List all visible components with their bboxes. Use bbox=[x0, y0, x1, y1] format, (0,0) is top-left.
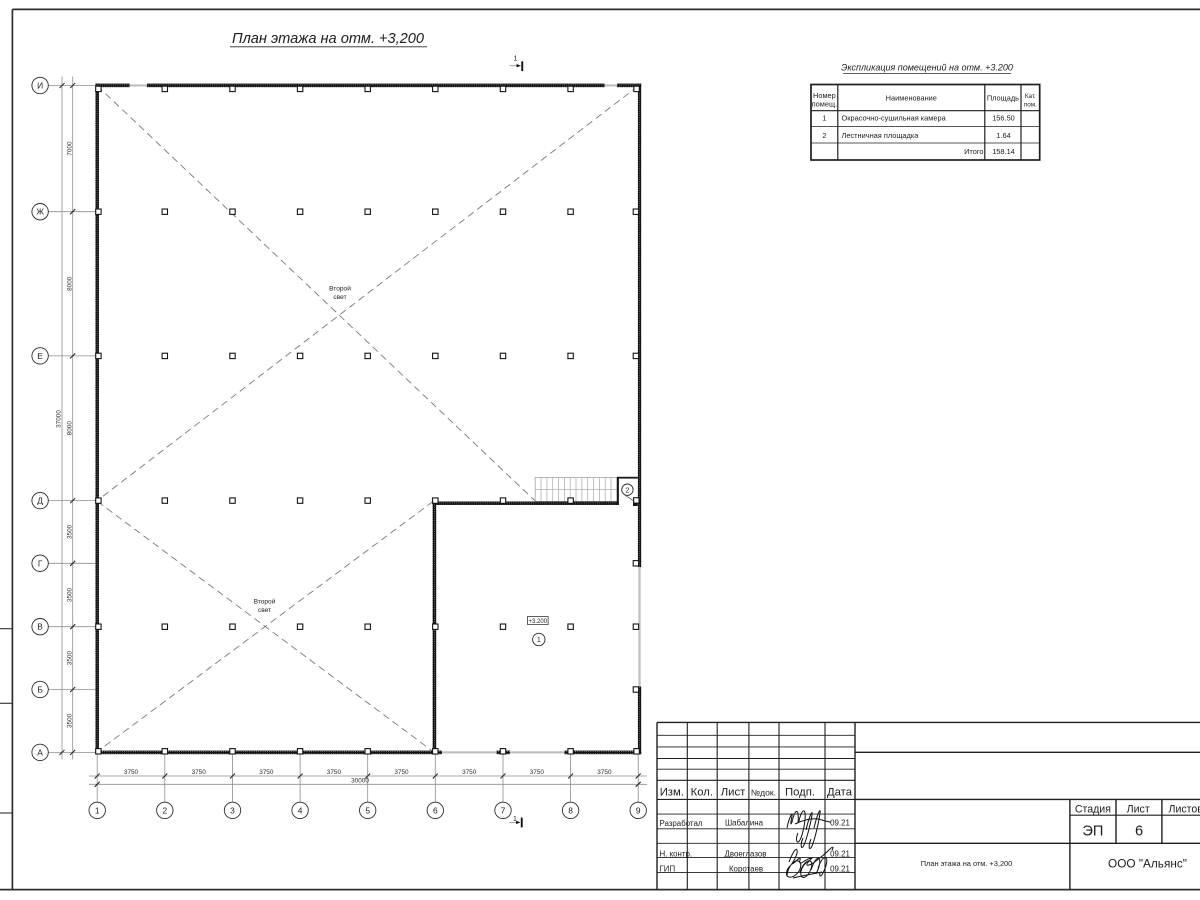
svg-text:09.21: 09.21 bbox=[830, 819, 850, 828]
svg-text:1: 1 bbox=[95, 805, 100, 815]
svg-text:3750: 3750 bbox=[597, 769, 612, 776]
svg-text:Окрасочно-сушильная камера: Окрасочно-сушильная камера bbox=[842, 114, 947, 123]
svg-text:9: 9 bbox=[636, 805, 641, 815]
svg-text:Листов: Листов bbox=[1169, 804, 1200, 816]
svg-text:3750: 3750 bbox=[259, 769, 274, 776]
svg-text:Стадия: Стадия bbox=[1075, 804, 1111, 816]
svg-text:7000: 7000 bbox=[66, 141, 73, 156]
svg-text:6: 6 bbox=[433, 805, 438, 815]
svg-text:А: А bbox=[37, 747, 43, 757]
svg-text:3500: 3500 bbox=[66, 524, 73, 539]
svg-text:3500: 3500 bbox=[66, 713, 73, 728]
svg-text:Е: Е bbox=[37, 351, 43, 361]
svg-text:Д: Д bbox=[37, 496, 43, 506]
svg-text:Наименование: Наименование bbox=[886, 94, 937, 103]
svg-text:3750: 3750 bbox=[124, 769, 139, 776]
svg-text:09.21: 09.21 bbox=[830, 864, 850, 873]
svg-text:№док.: №док. bbox=[751, 788, 776, 798]
svg-text:План этажа на отм. +3,200: План этажа на отм. +3,200 bbox=[921, 859, 1013, 868]
svg-text:помещ.: помещ. bbox=[812, 99, 837, 108]
svg-text:пом.: пом. bbox=[1024, 101, 1037, 108]
svg-text:1.64: 1.64 bbox=[996, 131, 1010, 140]
svg-text:+3.200: +3.200 bbox=[529, 619, 548, 625]
svg-text:свет: свет bbox=[333, 294, 346, 301]
svg-text:Кол.: Кол. bbox=[691, 787, 713, 799]
svg-text:Дата: Дата bbox=[827, 787, 853, 799]
svg-text:3750: 3750 bbox=[327, 769, 342, 776]
svg-text:ЭП: ЭП bbox=[1082, 824, 1103, 840]
svg-text:2: 2 bbox=[822, 131, 826, 140]
svg-text:свет: свет bbox=[258, 607, 271, 614]
svg-text:Коротаев: Коротаев bbox=[729, 864, 763, 873]
svg-text:3500: 3500 bbox=[66, 587, 73, 602]
svg-text:Лист: Лист bbox=[1127, 804, 1150, 816]
svg-text:09.21: 09.21 bbox=[830, 849, 850, 858]
svg-text:Площадь: Площадь bbox=[987, 94, 1019, 103]
svg-text:30000: 30000 bbox=[351, 778, 369, 785]
svg-text:Двоеглазов: Двоеглазов bbox=[725, 849, 767, 858]
svg-text:План этажа на отм. +3,200: План этажа на отм. +3,200 bbox=[232, 31, 424, 47]
svg-text:8: 8 bbox=[568, 805, 573, 815]
svg-text:Второй: Второй bbox=[254, 598, 276, 606]
svg-text:В: В bbox=[37, 622, 43, 632]
svg-text:3: 3 bbox=[230, 805, 235, 815]
svg-text:2: 2 bbox=[162, 805, 167, 815]
svg-text:Лестничная площадка: Лестничная площадка bbox=[842, 131, 920, 140]
svg-text:Изм.: Изм. bbox=[660, 787, 684, 799]
svg-text:3750: 3750 bbox=[462, 769, 477, 776]
svg-text:3750: 3750 bbox=[192, 769, 207, 776]
svg-text:156.50: 156.50 bbox=[992, 114, 1015, 123]
svg-text:3750: 3750 bbox=[530, 769, 545, 776]
svg-text:1: 1 bbox=[537, 637, 541, 644]
svg-text:Б: Б bbox=[37, 685, 43, 695]
svg-text:37000: 37000 bbox=[56, 410, 63, 428]
svg-text:8000: 8000 bbox=[66, 276, 73, 291]
svg-text:Кат.: Кат. bbox=[1025, 93, 1036, 100]
svg-text:3750: 3750 bbox=[394, 769, 409, 776]
svg-text:Экспликация помещений на отм.: Экспликация помещений на отм. +3.200 bbox=[841, 63, 1013, 73]
svg-text:6: 6 bbox=[1135, 824, 1143, 840]
svg-text:Лист: Лист bbox=[721, 787, 746, 799]
svg-text:Н. контр.: Н. контр. bbox=[660, 849, 693, 858]
svg-text:Разработал: Разработал bbox=[660, 819, 703, 828]
svg-text:4: 4 bbox=[298, 805, 303, 815]
svg-text:158.14: 158.14 bbox=[992, 147, 1015, 156]
svg-text:3500: 3500 bbox=[66, 651, 73, 666]
svg-text:1: 1 bbox=[514, 56, 518, 63]
svg-text:ГИП: ГИП bbox=[660, 864, 676, 873]
svg-text:Ж: Ж bbox=[36, 207, 44, 217]
svg-text:8000: 8000 bbox=[66, 421, 73, 436]
svg-text:5: 5 bbox=[365, 805, 370, 815]
svg-text:Второй: Второй bbox=[329, 285, 351, 293]
svg-text:2: 2 bbox=[625, 487, 629, 494]
svg-text:Г: Г bbox=[38, 558, 43, 568]
svg-text:1: 1 bbox=[822, 114, 826, 123]
svg-text:Шабалина: Шабалина bbox=[725, 819, 764, 828]
svg-text:7: 7 bbox=[501, 805, 506, 815]
svg-text:Итого: Итого bbox=[964, 147, 983, 156]
svg-text:И: И bbox=[37, 81, 43, 91]
svg-text:Подп.: Подп. bbox=[785, 787, 815, 799]
svg-text:ООО "Альянс": ООО "Альянс" bbox=[1108, 857, 1187, 871]
